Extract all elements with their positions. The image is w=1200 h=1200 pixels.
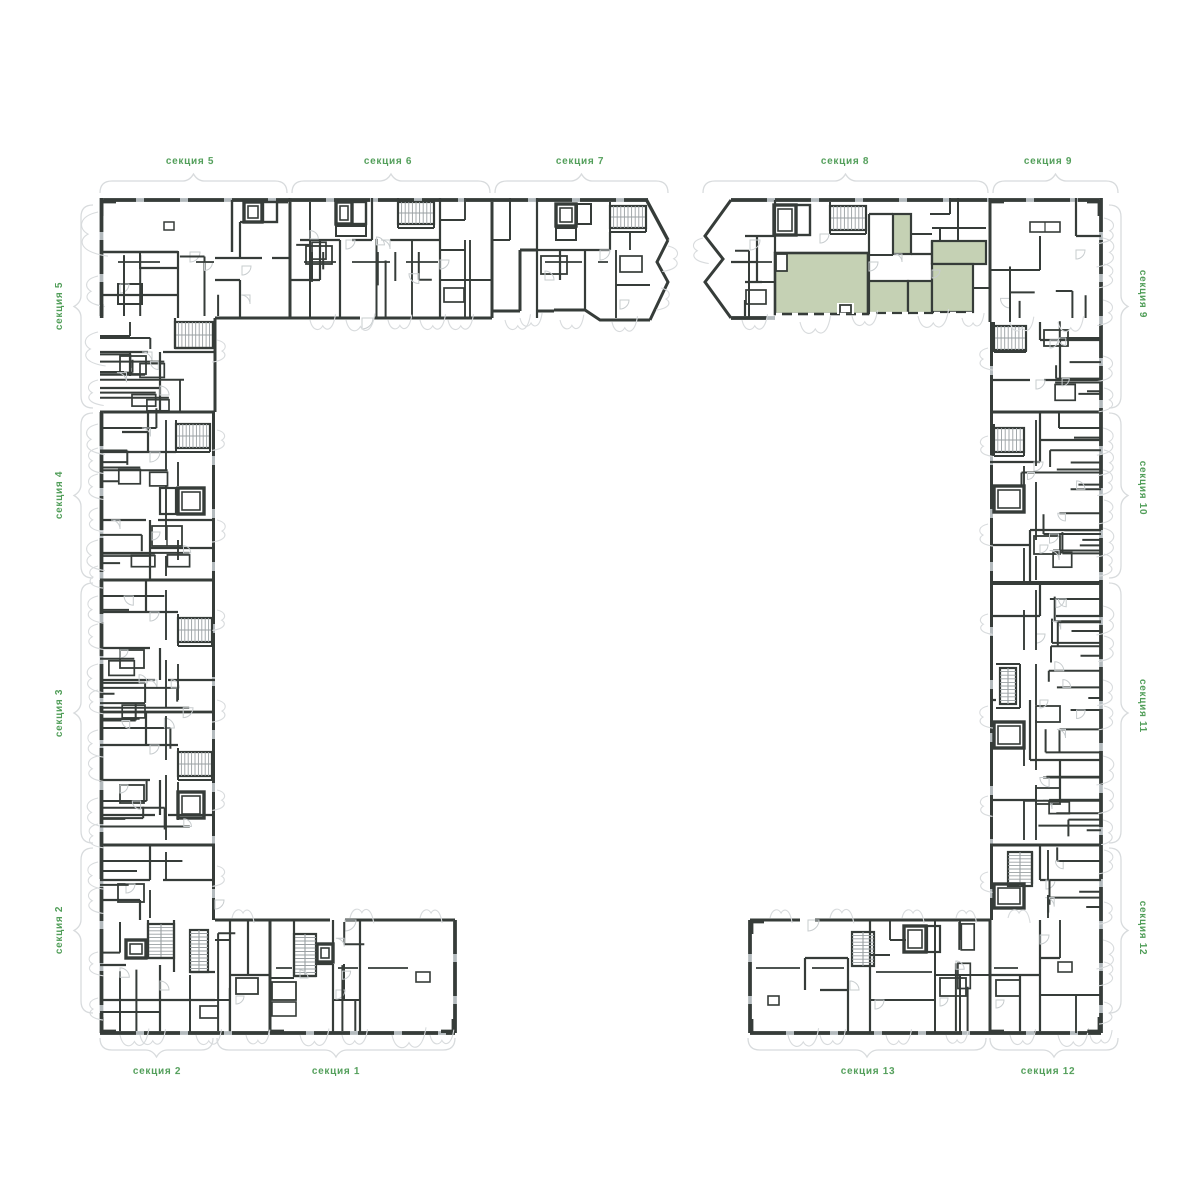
svg-text:секция 9: секция 9 (1024, 156, 1072, 167)
svg-text:секция 10: секция 10 (1137, 461, 1148, 515)
svg-text:секция 6: секция 6 (364, 156, 412, 167)
svg-text:секция 4: секция 4 (54, 471, 65, 519)
svg-text:секция 2: секция 2 (54, 906, 65, 954)
svg-text:секция 12: секция 12 (1137, 901, 1148, 955)
svg-text:секция 5: секция 5 (166, 156, 214, 167)
svg-text:секция 12: секция 12 (1021, 1066, 1076, 1077)
svg-text:секция 3: секция 3 (54, 689, 65, 737)
svg-text:секция 9: секция 9 (1137, 270, 1148, 318)
svg-text:секция 11: секция 11 (1137, 679, 1148, 733)
svg-text:секция 1: секция 1 (312, 1066, 360, 1077)
svg-text:секция 7: секция 7 (556, 156, 604, 167)
svg-text:секция 5: секция 5 (54, 282, 65, 330)
svg-text:секция 13: секция 13 (841, 1066, 896, 1077)
svg-text:секция 8: секция 8 (821, 156, 869, 167)
svg-text:секция 2: секция 2 (133, 1066, 181, 1077)
